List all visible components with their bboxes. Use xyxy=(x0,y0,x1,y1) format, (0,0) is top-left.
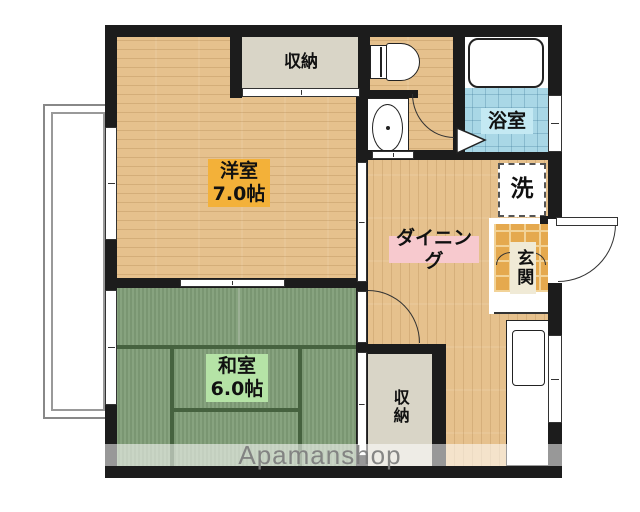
entrance-label: 玄関 xyxy=(510,242,536,294)
floor-plan: 洋室 7.0帖 和室 6.0帖 ダイニング 浴室 洗 玄関 収納 収納 Apam… xyxy=(0,0,640,512)
tatami-gutter xyxy=(174,408,298,412)
storage-bottom-label: 収納 xyxy=(384,372,416,442)
watermark-band: Apamanshop xyxy=(0,444,640,466)
sliding-door-western-japanese xyxy=(180,279,285,287)
sliding-door-western-dining xyxy=(357,162,367,282)
window-balcony-west xyxy=(105,127,117,240)
japanese-room-label: 和室 6.0帖 xyxy=(206,354,268,402)
bathroom-name: 浴室 xyxy=(488,110,526,133)
balcony-inner-line xyxy=(51,112,105,411)
watermark-text: Apamanshop xyxy=(238,440,401,471)
wall-left xyxy=(105,25,117,478)
western-room-label: 洋室 7.0帖 xyxy=(208,159,270,207)
bathroom-label: 浴室 xyxy=(481,108,533,134)
japanese-room-name: 和室 xyxy=(218,355,256,378)
japanese-room-door-leaf xyxy=(357,291,367,343)
wall-top xyxy=(105,25,562,37)
laundry-label: 洗 xyxy=(500,172,544,208)
bathtub xyxy=(468,38,544,88)
storage-top-name: 収納 xyxy=(284,52,318,72)
washbasin-drain xyxy=(386,126,390,130)
western-room-size: 7.0帖 xyxy=(213,183,266,206)
front-door-swing-arc xyxy=(558,224,616,282)
entrance-name: 玄関 xyxy=(513,249,533,287)
storage-top-label: 収納 xyxy=(268,50,334,74)
balcony xyxy=(43,104,113,419)
storage-bottom-name: 収納 xyxy=(390,389,409,425)
window-balcony-japanese xyxy=(105,290,117,405)
laundry-name: 洗 xyxy=(511,176,534,204)
dining-name: ダイニング xyxy=(389,227,479,273)
western-room-name: 洋室 xyxy=(220,160,258,183)
window-kitchen xyxy=(548,335,562,423)
tatami-gutter xyxy=(112,345,358,349)
storage-top-sliding-door xyxy=(242,88,360,97)
toilet-tank-line xyxy=(380,47,382,77)
tatami-seam xyxy=(238,288,240,345)
entrance-step xyxy=(494,292,548,314)
wall-storage-left xyxy=(230,25,242,98)
window-bathroom xyxy=(548,95,562,152)
toilet-tank xyxy=(370,45,387,79)
dining-label: ダイニング xyxy=(389,236,479,263)
kitchen-sink xyxy=(512,330,545,386)
front-door-leaf xyxy=(556,217,618,226)
japanese-room-size: 6.0帖 xyxy=(211,378,264,401)
washroom-sliding-door xyxy=(372,151,414,159)
